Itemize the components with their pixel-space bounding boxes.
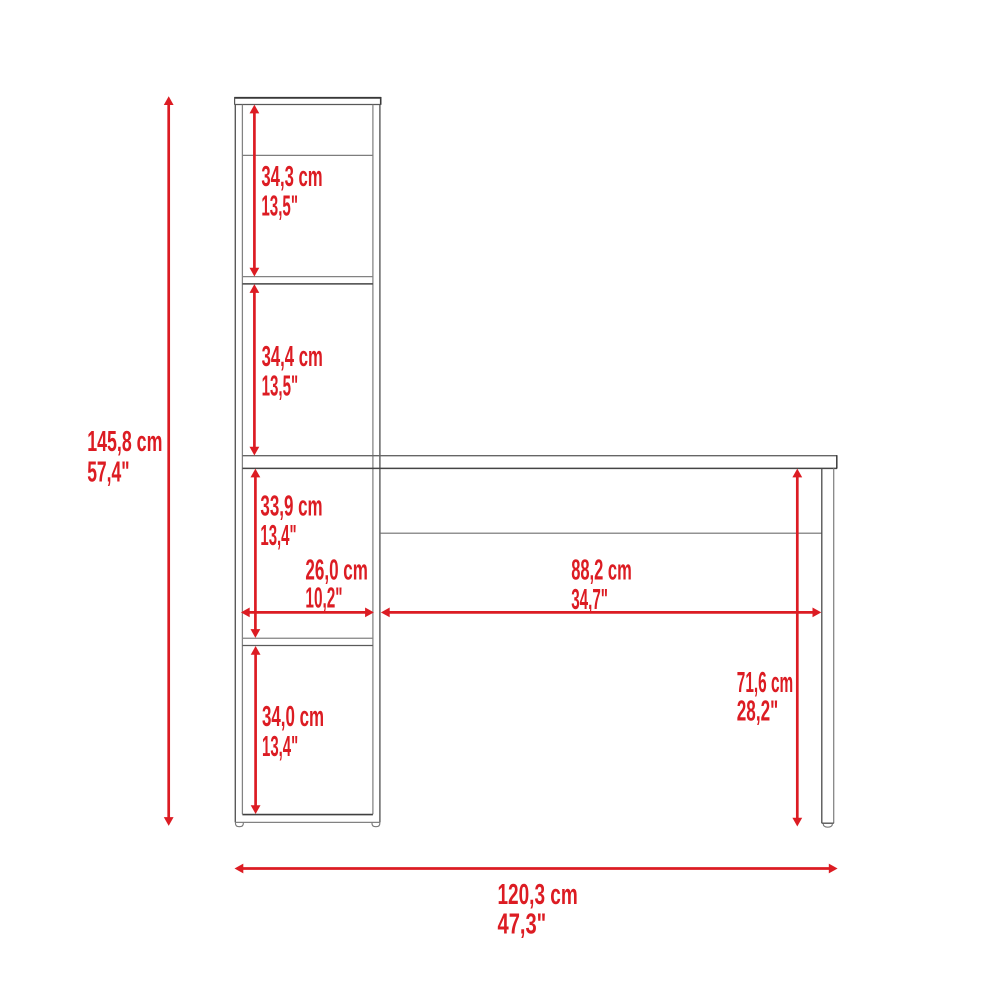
- svg-text:10,2": 10,2": [305, 583, 342, 615]
- svg-text:47,3": 47,3": [498, 909, 547, 941]
- svg-text:26,0 cm: 26,0 cm: [305, 554, 368, 586]
- svg-text:34,4 cm: 34,4 cm: [262, 341, 323, 373]
- svg-text:88,2 cm: 88,2 cm: [571, 554, 632, 586]
- svg-text:57,4": 57,4": [87, 457, 129, 489]
- svg-text:34,3 cm: 34,3 cm: [261, 161, 322, 193]
- svg-text:33,9 cm: 33,9 cm: [260, 491, 322, 523]
- svg-text:13,5": 13,5": [261, 191, 298, 223]
- svg-text:71,6 cm: 71,6 cm: [737, 667, 793, 699]
- svg-text:120,3 cm: 120,3 cm: [498, 879, 578, 911]
- svg-text:13,4": 13,4": [260, 520, 296, 552]
- svg-text:13,5": 13,5": [262, 371, 299, 403]
- svg-text:13,4": 13,4": [262, 731, 298, 763]
- svg-text:28,2": 28,2": [737, 695, 778, 727]
- svg-text:145,8 cm: 145,8 cm: [87, 426, 162, 458]
- svg-text:34,0 cm: 34,0 cm: [262, 701, 324, 733]
- svg-text:34,7": 34,7": [571, 584, 608, 616]
